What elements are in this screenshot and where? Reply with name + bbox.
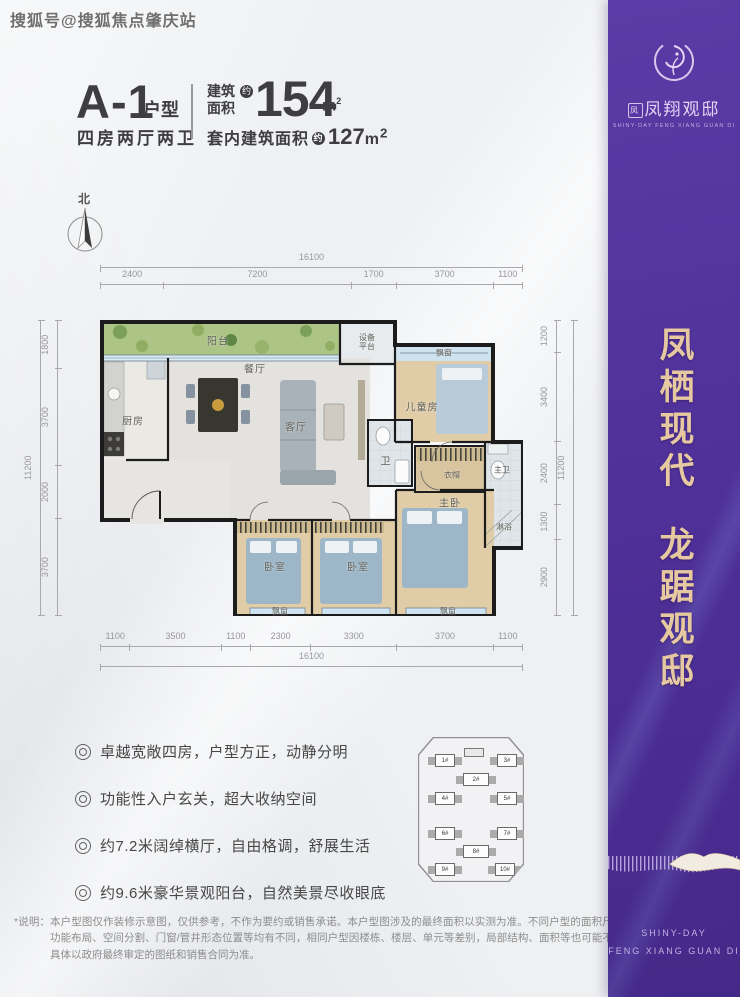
disclaimer-text: *说明：本户型图仅作装修示意图，仅供参考，不作为要约或销售承诺。本户型图涉及的最… [14,914,634,963]
room-label-dining: 餐厅 [244,361,266,376]
dim-segment: 2000 [55,465,62,518]
equipment-line1: 设备 [359,333,375,342]
site-plan: 1# 3# 2# 4# 5# 6# 7# 8# 9# 10# [418,737,524,882]
building-wing [515,866,522,874]
mountain-decoration [608,846,740,888]
room-label-equipment: 设备平台 [359,333,375,351]
slogan-line-2: 龙踞观邸 [649,526,700,694]
dim-segment: 11200 [571,320,578,616]
dim-value: 11200 [23,321,33,615]
building-label: 10# [495,863,515,876]
ring-bullet-icon [75,838,91,854]
building-5: 5# [490,792,524,805]
dim-segment: 1100 [493,644,523,651]
building-wing [428,830,435,838]
dim-value: 1100 [101,631,129,641]
dim-value: 2400 [539,442,549,504]
feature-item: 卓越宽敞四房，户型方正，动静分明 [75,741,386,762]
brand-block: 凤凤翔观邸 SHINY-DAY FENG XIANG GUAN DI [608,36,740,129]
feature-item: 约9.6米豪华景观阳台，自然美景尽收眼底 [75,882,386,903]
dim-segment: 1800 [55,320,62,368]
dim-value: 2900 [539,540,549,615]
building-wing [428,866,435,874]
dim-value: 1300 [539,505,549,539]
building-7: 7# [490,827,524,840]
dim-segment: 3300 [310,644,396,651]
dim-segment: 1100 [100,644,129,651]
dim-value: 16100 [101,651,522,661]
floorplan-drawing [100,320,523,616]
dim-value: 2400 [101,269,163,279]
room-label-bay-top: 飘窗 [436,348,452,359]
watermark: 搜狐号@搜狐焦点肇庆站 [10,7,197,31]
dim-value: 3700 [397,631,492,641]
ring-inner [79,842,87,850]
dim-value: 2300 [251,631,310,641]
north-label: 北 [57,190,111,207]
dim-bottom-total: 16100 [100,666,523,667]
approx-badge: 约 [240,85,253,98]
banner-footer-line1: SHINY-DAY [608,928,740,938]
dim-value: 1100 [494,269,522,279]
dim-value: 1700 [352,269,396,279]
dim-value: 3700 [40,519,50,615]
brand-seal: 凤 [628,103,643,118]
building-label: 2# [463,773,489,786]
ring-bullet-icon [75,791,91,807]
building-wing [490,830,497,838]
gross-area-unit: m2 [322,96,341,115]
room-label-kitchen: 厨房 [122,413,144,428]
feature-item: 约7.2米阔绰横厅，自由格调，舒展生活 [75,835,386,856]
inner-area-label: 套内建筑面积 [207,131,309,148]
dim-value: 1100 [222,631,250,641]
feature-text: 卓越宽敞四房，户型方正，动静分明 [100,741,348,762]
building-label: 5# [497,792,517,805]
dim-segment: 1100 [493,282,523,289]
building-label: 6# [435,827,455,840]
building-wing [428,757,435,765]
dim-segment: 3700 [55,368,62,465]
inner-area-line: 套内建筑面积约127m2 [207,124,388,150]
dim-segment: 7200 [163,282,350,289]
dim-value: 3400 [539,353,549,441]
dim-right-total: 11200 [573,320,574,616]
feature-text: 约9.6米豪华景观阳台，自然美景尽收眼底 [100,882,386,903]
building-wing [455,795,462,803]
building-9: 9# [428,863,462,876]
feature-text: 功能性入户玄关，超大收纳空间 [100,788,317,809]
building-3: 3# [490,754,524,767]
building-wing [455,757,462,765]
banner-footer-line2: FENG XIANG GUAN DI [608,946,740,956]
dim-value: 3300 [311,631,396,641]
floorplan: 阳台 设备平台 飘窗 厨房 餐厅 客厅 卫 儿童房 衣帽 主卫 淋浴 主卧 卧室… [100,320,523,616]
building-wing [517,830,524,838]
dim-top-segments: 2400 7200 1700 3700 1100 [100,284,523,285]
building-wing [490,757,497,765]
room-label-cloak: 衣帽 [444,470,460,481]
dim-value: 3500 [130,631,220,641]
room-label-master-bath: 主卫 [494,465,510,476]
feature-text: 约7.2米阔绰横厅，自由格调，舒展生活 [100,835,370,856]
building-2: 2# [456,773,496,786]
ring-inner [79,748,87,756]
building-label: 7# [497,827,517,840]
dim-value: 1200 [539,321,549,352]
building-wing [517,757,524,765]
brand-name: 凤翔观邸 [645,100,721,120]
building-label: 9# [435,863,455,876]
equipment-line2: 平台 [359,342,375,351]
building-4: 4# [428,792,462,805]
feature-list: 卓越宽敞四房，户型方正，动静分明 功能性入户玄关，超大收纳空间 约7.2米阔绰横… [75,741,386,929]
dim-value: 1100 [494,631,522,641]
dim-value: 2000 [40,466,50,518]
gross-area-label-line2: 面积 [207,101,235,115]
dim-value: 1800 [40,321,50,368]
ring-inner [79,889,87,897]
room-label-balcony: 阳台 [207,333,229,348]
dim-bottom-segments: 1100 3500 1100 2300 3300 3700 1100 [100,646,523,647]
header-divider [191,84,193,139]
building-8: 8# [456,845,496,858]
building-wing [489,776,496,784]
building-wing [456,848,463,856]
ring-bullet-icon [75,885,91,901]
site-plan-gate [464,748,484,757]
building-6: 6# [428,827,462,840]
room-label-kids: 儿童房 [406,399,439,414]
room-label-bay-a: 飘窗 [272,606,288,617]
dim-segment: 1700 [351,282,396,289]
dim-segment: 1100 [221,644,250,651]
dim-value: 3700 [397,269,493,279]
feature-item: 功能性入户玄关，超大收纳空间 [75,788,386,809]
brand-banner: 凤凤翔观邸 SHINY-DAY FENG XIANG GUAN DI 凤栖现代 … [608,0,740,997]
vertical-slogan: 凤栖现代 龙踞观邸 [608,326,740,694]
building-wing [517,795,524,803]
ring-bullet-icon [75,744,91,760]
room-label-bedroom-b: 卧室 [347,559,369,574]
unit-m: m [322,97,336,114]
dim-segment: 3700 [55,518,62,616]
inner-area-value: 127 [328,124,365,149]
banner-footer: SHINY-DAY FENG XIANG GUAN DI [608,928,740,956]
room-label-living: 客厅 [285,419,307,434]
building-label: 1# [435,754,455,767]
building-wing [490,795,497,803]
unit-exp: 2 [336,96,341,106]
room-label-master: 主卧 [439,495,461,510]
slogan-line-1: 凤栖现代 [649,326,700,494]
building-wing [428,795,435,803]
approx-badge-inner: 约 [312,132,325,145]
building-wing [456,776,463,784]
brand-name-row: 凤凤翔观邸 [608,95,740,120]
building-wing [455,866,462,874]
brand-tagline: SHINY-DAY FENG XIANG GUAN DI [608,123,740,129]
building-10: 10# [488,863,522,876]
building-1: 1# [428,754,462,767]
building-wing [455,830,462,838]
inner-unit-exp: 2 [380,126,388,141]
dim-left-segments: 1800 3700 2000 3700 [57,320,58,616]
dim-value: 11200 [556,321,566,615]
unit-type-suffix: 户型 [143,96,179,122]
gross-area-label-line1: 建筑 [207,84,235,98]
building-label: 8# [463,845,489,858]
building-label: 3# [497,754,517,767]
dim-value: 3700 [40,369,50,465]
gross-area-label: 建筑 面积 [207,84,235,118]
room-label-shower: 淋浴 [496,522,512,533]
dim-value: 16100 [101,252,522,262]
dim-segment: 3500 [129,644,220,651]
dim-segment: 3700 [396,282,493,289]
dim-segment: 16100 [100,664,523,671]
building-wing [489,848,496,856]
room-label-bedroom-a: 卧室 [264,559,286,574]
dim-segment: 3700 [396,644,492,651]
inner-unit-m: m [365,131,380,148]
building-label: 4# [435,792,455,805]
layout-description: 四房两厅两卫 [77,124,197,149]
phoenix-logo-icon [647,36,701,88]
building-wing [488,866,495,874]
ring-inner [79,795,87,803]
dim-segment: 2400 [100,282,163,289]
dim-segment: 2300 [250,644,310,651]
room-label-bath: 卫 [381,453,392,468]
room-label-bay-b: 飘窗 [440,606,456,617]
dim-value: 7200 [164,269,350,279]
